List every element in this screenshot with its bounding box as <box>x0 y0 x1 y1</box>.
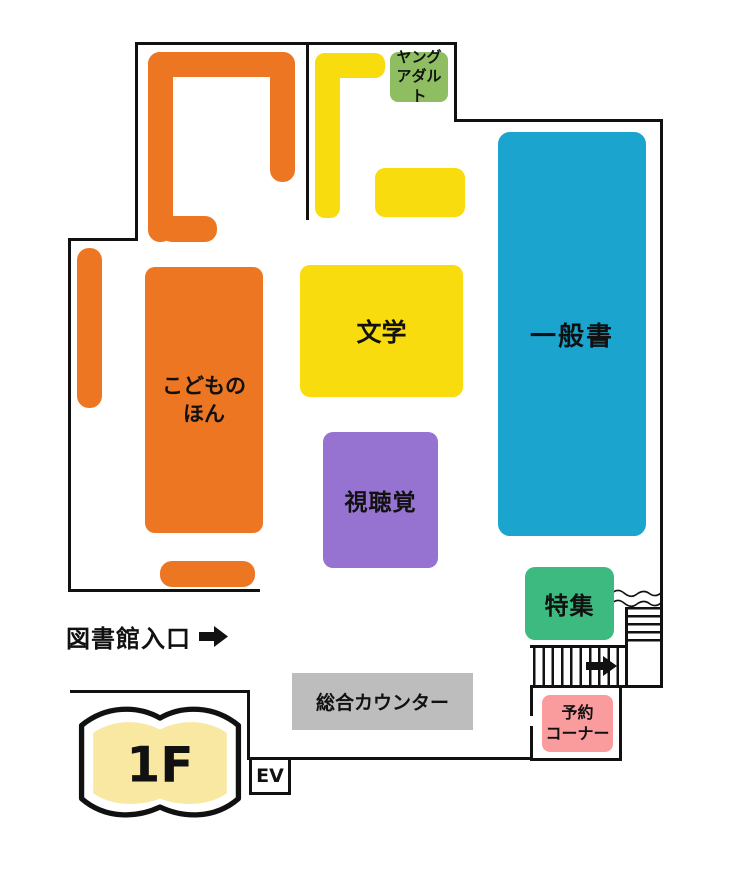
area-reservation-corner-label: 予約 コーナー <box>545 703 609 745</box>
elevator-box: EV <box>249 757 291 795</box>
children-shelf-side <box>77 248 102 408</box>
wall-segment <box>530 685 533 716</box>
wall-segment <box>530 726 533 761</box>
literature-shelf-block <box>375 168 465 217</box>
area-main-counter-label: 総合カウンター <box>316 688 449 715</box>
wall-segment <box>530 758 622 761</box>
area-reservation-corner: 予約 コーナー <box>542 695 613 752</box>
children-shelf-foot <box>160 216 217 242</box>
entrance-label: 図書館入口 <box>66 619 191 654</box>
area-audio-visual: 視聴覚 <box>323 432 438 568</box>
wall-segment <box>135 42 457 45</box>
entrance-label-row: 図書館入口 <box>66 622 229 650</box>
area-young-adult-label: ヤング アダルト <box>390 48 448 107</box>
stairs-break-line <box>609 587 663 609</box>
library-floor-map: こどもの ほん 文学 一般書 視聴覚 特集 ヤング アダルト 総合カウンター 予… <box>0 0 729 878</box>
children-shelf-left <box>148 52 173 242</box>
area-literature-label: 文学 <box>356 313 406 349</box>
floor-label: 1F <box>126 738 193 794</box>
wall-segment <box>135 42 138 241</box>
wall-segment <box>68 589 260 592</box>
entrance-arrow-icon <box>199 625 229 648</box>
wall-segment <box>306 42 309 220</box>
children-shelf-bottom <box>160 561 255 587</box>
wall-segment <box>247 690 250 760</box>
area-general-books: 一般書 <box>498 132 646 536</box>
stairs-bottom-edge <box>530 685 663 688</box>
elevator-label: EV <box>256 765 284 787</box>
stairs-up-arrow-icon <box>586 655 618 677</box>
area-special-feature: 特集 <box>525 567 614 640</box>
wall-segment <box>291 757 533 760</box>
area-children-books-label: こどもの ほん <box>162 372 246 429</box>
area-young-adult: ヤング アダルト <box>390 52 448 102</box>
area-general-books-label: 一般書 <box>530 316 614 353</box>
wall-segment <box>68 238 71 592</box>
wall-segment <box>68 238 138 241</box>
stairs-upper-treads <box>628 607 660 647</box>
area-main-counter: 総合カウンター <box>292 673 473 730</box>
wall-segment <box>454 119 663 122</box>
area-children-books: こどもの ほん <box>145 267 263 533</box>
area-audio-visual-label: 視聴覚 <box>345 483 417 517</box>
wall-segment <box>619 685 622 761</box>
wall-segment <box>454 42 457 122</box>
floor-indicator-book-icon: 1F <box>76 700 244 824</box>
area-literature: 文学 <box>300 265 463 397</box>
area-special-feature-label: 特集 <box>545 586 595 621</box>
children-shelf-right <box>270 52 295 182</box>
literature-shelf-left <box>315 53 340 218</box>
wall-segment <box>70 690 250 693</box>
